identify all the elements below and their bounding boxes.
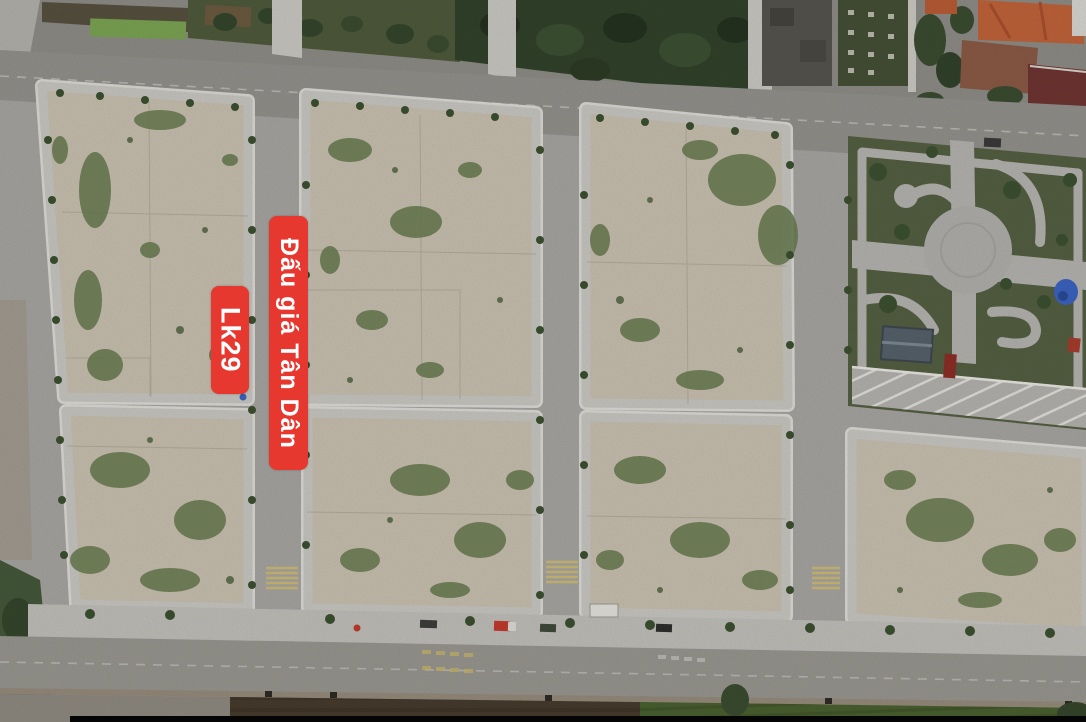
photo-grain: [0, 0, 1086, 722]
aerial-photo: Đấu giá Tân Dân Lk29: [0, 0, 1086, 722]
auction-banner-label: Đấu giá Tân Dân: [269, 216, 308, 470]
lot-number-label: Lk29: [211, 286, 249, 394]
aerial-scene: [0, 0, 1086, 722]
